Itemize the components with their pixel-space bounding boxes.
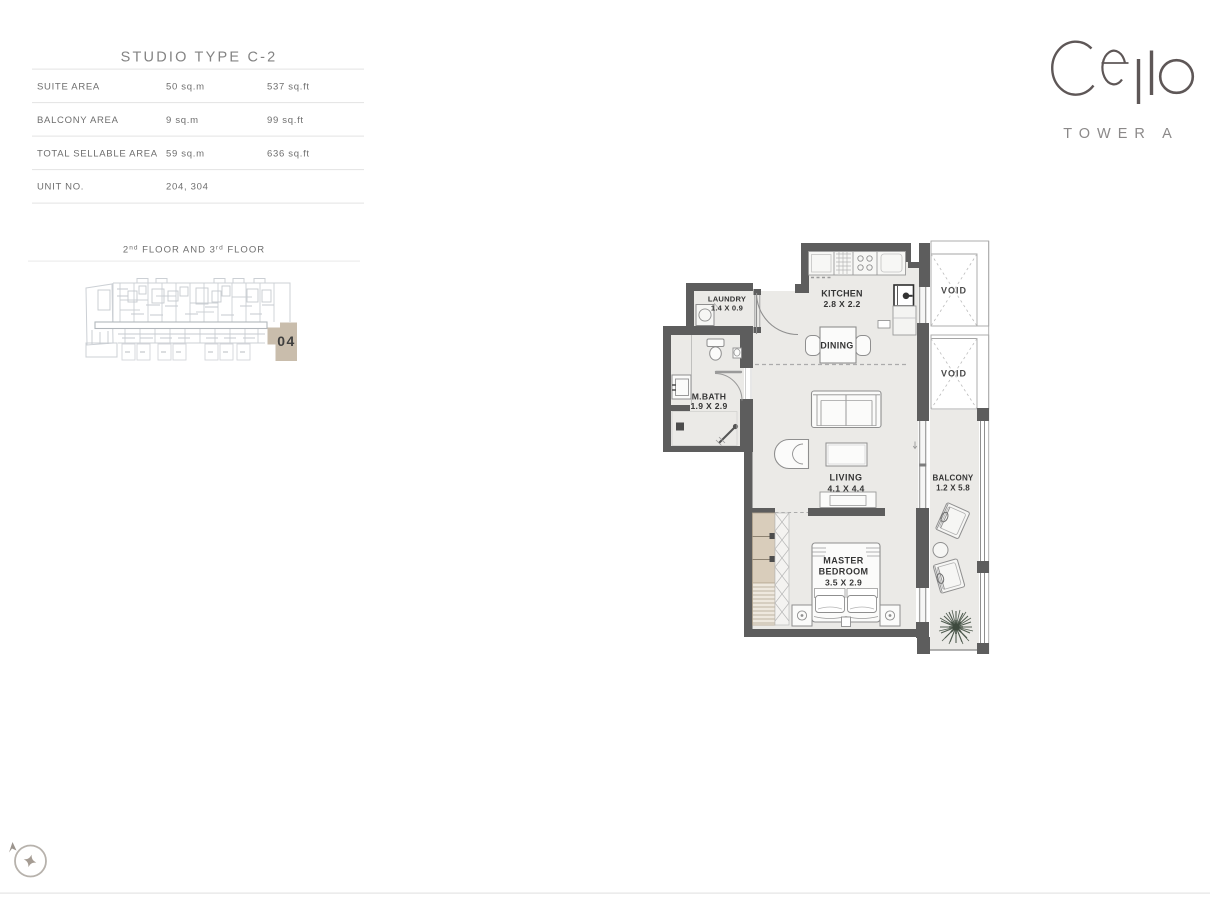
svg-text:636 sq.ft: 636 sq.ft <box>267 149 310 160</box>
svg-text:BEDROOM: BEDROOM <box>819 567 869 577</box>
svg-text:LAUNDRY: LAUNDRY <box>708 295 746 304</box>
svg-text:1.9 X 2.9: 1.9 X 2.9 <box>690 401 727 411</box>
svg-text:VOID: VOID <box>941 369 967 379</box>
svg-text:MASTER: MASTER <box>823 556 864 566</box>
svg-text:LIVING: LIVING <box>829 473 862 483</box>
svg-text:9 sq.m: 9 sq.m <box>166 115 199 126</box>
svg-text:2.8 X 2.2: 2.8 X 2.2 <box>823 299 860 309</box>
svg-text:2nd FLOOR AND 3rd FLOOR: 2nd FLOOR AND 3rd FLOOR <box>123 245 265 256</box>
svg-text:3.5 X 2.9: 3.5 X 2.9 <box>825 578 862 588</box>
svg-text:SUITE AREA: SUITE AREA <box>37 82 100 93</box>
svg-text:59 sq.m: 59 sq.m <box>166 149 205 160</box>
svg-text:VOID: VOID <box>941 286 967 296</box>
svg-text:537 sq.ft: 537 sq.ft <box>267 82 310 93</box>
svg-text:TOWER A: TOWER A <box>1063 126 1179 142</box>
svg-text:M.BATH: M.BATH <box>692 392 727 402</box>
svg-text:KITCHEN: KITCHEN <box>821 289 862 299</box>
svg-text:BALCONY: BALCONY <box>933 474 974 483</box>
svg-text:50 sq.m: 50 sq.m <box>166 82 205 93</box>
svg-text:1.4 X 0.9: 1.4 X 0.9 <box>711 304 743 313</box>
svg-text:TOTAL SELLABLE AREA: TOTAL SELLABLE AREA <box>37 149 158 160</box>
svg-text:04: 04 <box>277 333 296 349</box>
svg-text:4.1 X 4.4: 4.1 X 4.4 <box>827 484 864 494</box>
svg-text:DINING: DINING <box>820 341 853 351</box>
svg-text:UNIT NO.: UNIT NO. <box>37 182 84 193</box>
svg-text:1.2 X 5.8: 1.2 X 5.8 <box>936 484 970 493</box>
svg-text:204, 304: 204, 304 <box>166 182 209 193</box>
svg-text:STUDIO TYPE C-2: STUDIO TYPE C-2 <box>121 50 278 66</box>
svg-text:99 sq.ft: 99 sq.ft <box>267 115 304 126</box>
svg-text:BALCONY AREA: BALCONY AREA <box>37 115 119 126</box>
